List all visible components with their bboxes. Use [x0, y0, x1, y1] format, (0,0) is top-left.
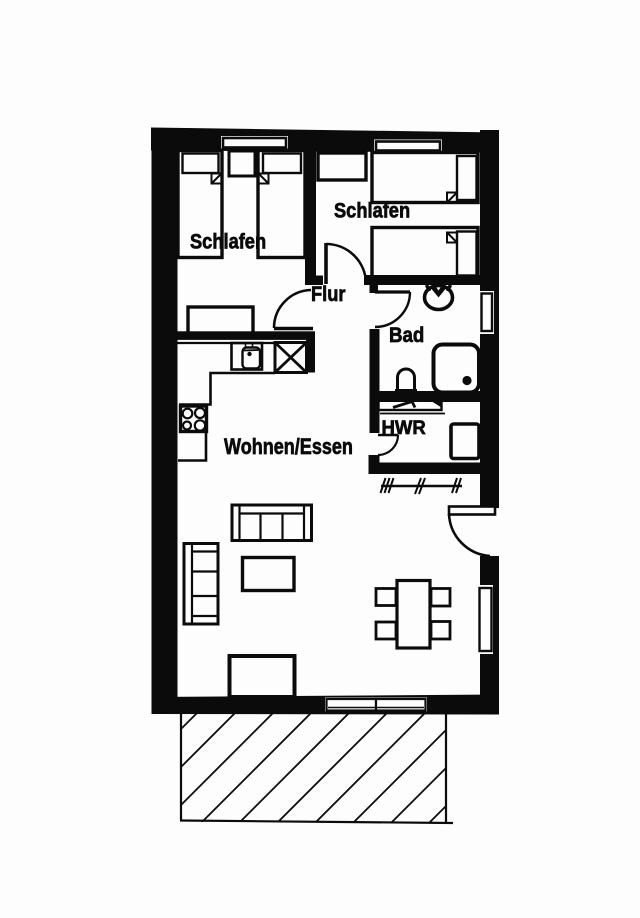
- svg-text:Schlafen: Schlafen: [334, 199, 410, 223]
- svg-text:Flur: Flur: [311, 283, 346, 307]
- svg-text:HWR: HWR: [382, 418, 426, 440]
- svg-text:Wohnen/Essen: Wohnen/Essen: [224, 435, 353, 459]
- svg-text:Schlafen: Schlafen: [190, 230, 266, 254]
- svg-text:Bad: Bad: [389, 324, 424, 347]
